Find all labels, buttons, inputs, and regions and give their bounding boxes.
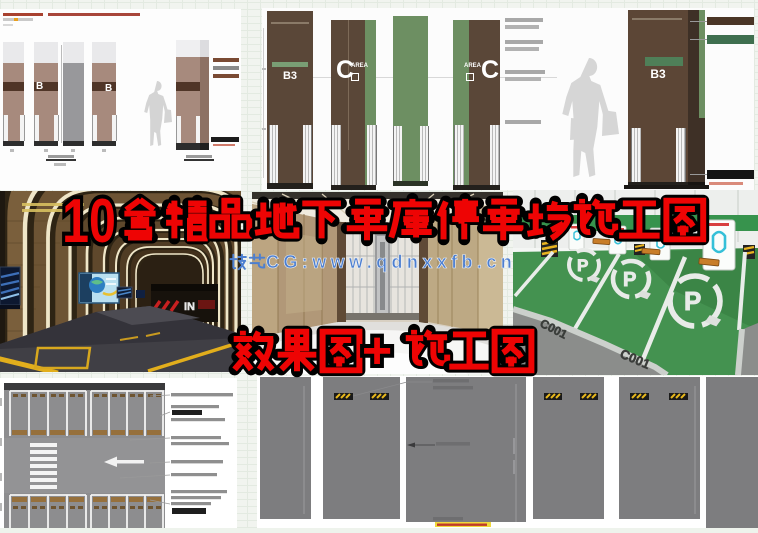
svg-text:P: P bbox=[577, 256, 588, 275]
svg-text:IN: IN bbox=[184, 301, 195, 313]
svg-text:P: P bbox=[623, 269, 636, 291]
svg-text:P: P bbox=[684, 286, 701, 316]
